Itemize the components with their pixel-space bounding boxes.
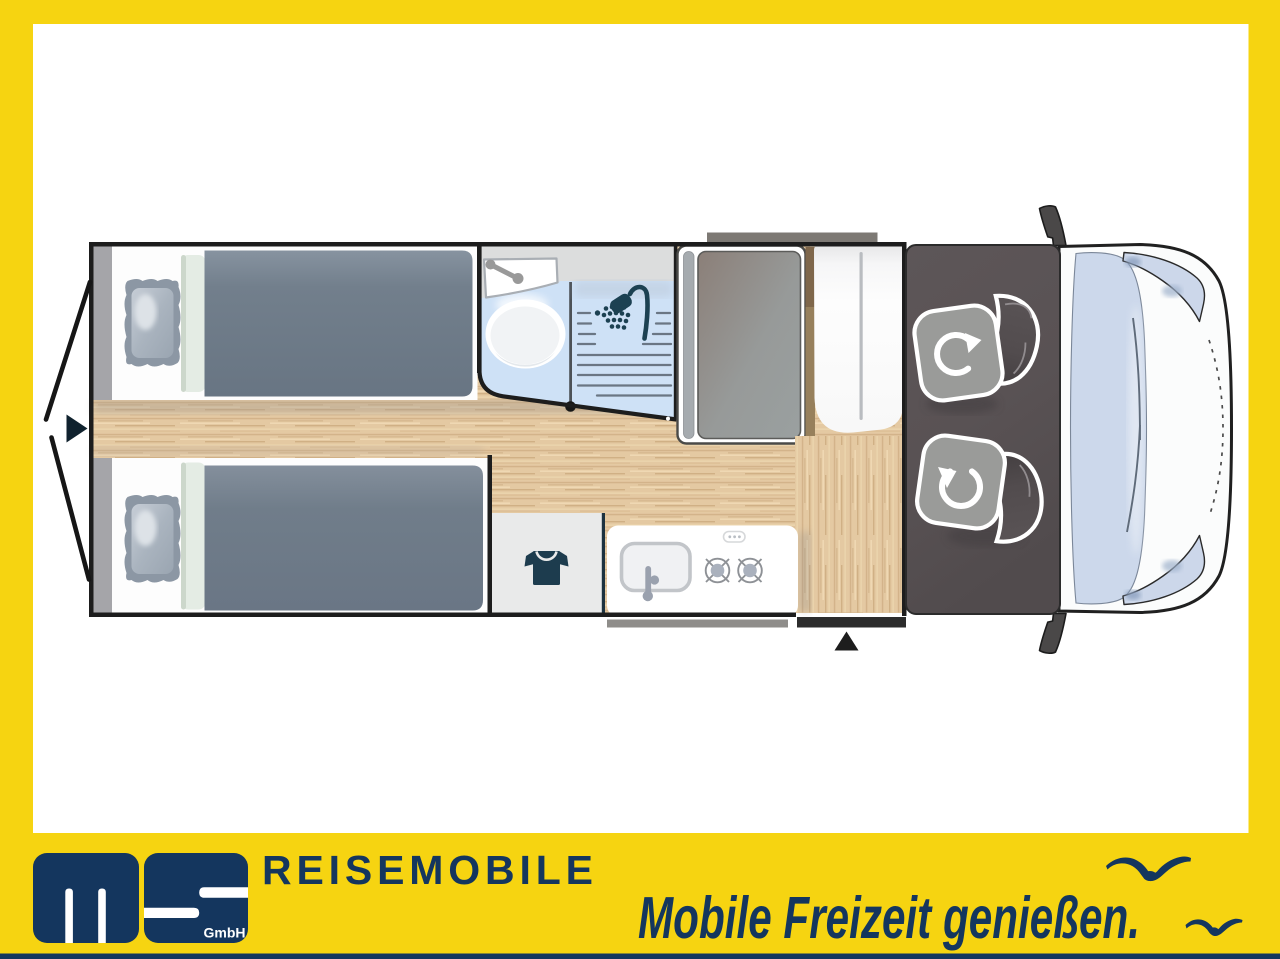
svg-text:Mobile Freizeit genießen.: Mobile Freizeit genießen. bbox=[638, 885, 1140, 951]
svg-text:GmbH: GmbH bbox=[204, 925, 246, 941]
svg-text:REISEMOBILE: REISEMOBILE bbox=[262, 847, 593, 893]
